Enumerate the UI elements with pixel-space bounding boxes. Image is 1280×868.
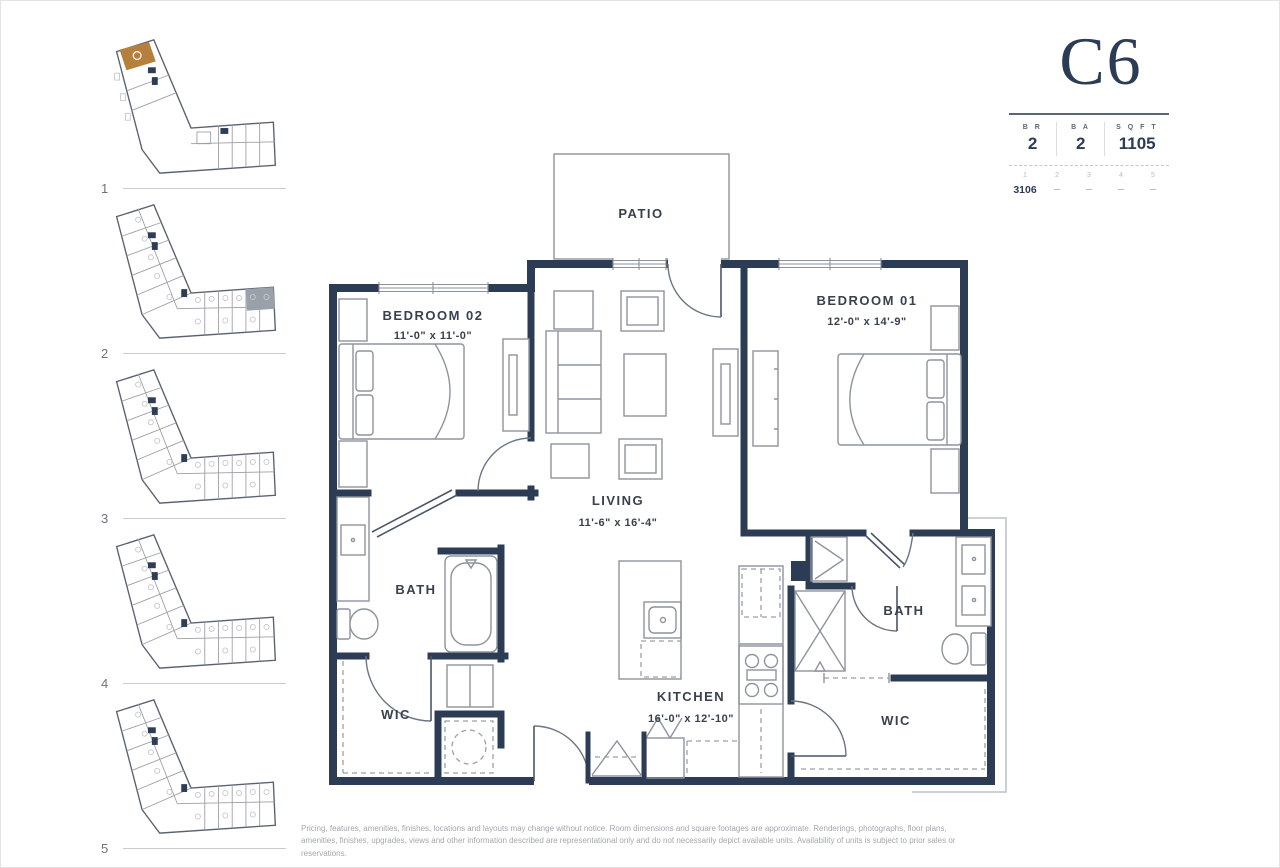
- availability-floor-4: –: [1105, 184, 1137, 196]
- floor-number-2: 2: [1041, 172, 1073, 179]
- level-label-2: 2: [101, 346, 286, 361]
- bedroom01-dims: 12'-0" x 14'-9": [827, 316, 906, 328]
- windows: [379, 257, 881, 295]
- bath-left-label: BATH: [395, 582, 436, 597]
- availability-floor-5: –: [1137, 184, 1169, 196]
- bath-right-fixtures: [942, 537, 991, 665]
- building-plate-level-1-icon: [101, 34, 286, 179]
- level-thumbnail-5[interactable]: 5: [101, 694, 286, 856]
- stat-br-label: B R: [1009, 124, 1056, 131]
- floor-number-5: 5: [1137, 172, 1169, 179]
- level-divider-line: [123, 518, 286, 519]
- level-divider-line: [123, 848, 286, 849]
- floor-number-1: 1: [1009, 172, 1041, 179]
- hall-closet-and-shower: [795, 537, 847, 671]
- level-label-1: 1: [101, 181, 286, 196]
- level-divider-line: [123, 353, 286, 354]
- living-furniture: [546, 291, 738, 479]
- availability-floor-3: –: [1073, 184, 1105, 196]
- kitchen-label: KITCHEN: [657, 689, 725, 704]
- wic-left-label: WIC: [381, 707, 411, 722]
- stats-dashed-rule: [1009, 165, 1169, 166]
- bath-right-label: BATH: [883, 603, 924, 618]
- floor-availability-row: 3106 – – – –: [1009, 179, 1169, 196]
- floorplan-drawing: PATIO BEDROOM 02 11'-0" x 11'-0" BEDROOM…: [319, 141, 1039, 801]
- patio-door: [668, 257, 721, 317]
- wic-right-label: WIC: [881, 713, 911, 728]
- entry-door: [534, 726, 589, 788]
- stats-top-rule: [1009, 113, 1169, 115]
- building-plate-level-4-icon: [101, 529, 286, 674]
- kitchen-fixtures: [588, 561, 783, 781]
- stat-ba-label: B A: [1057, 124, 1104, 131]
- availability-floor-1: 3106: [1009, 184, 1041, 196]
- bedroom02-furniture: [339, 299, 529, 487]
- level-divider-line: [123, 188, 286, 189]
- level-number: 4: [101, 676, 117, 691]
- building-plate-level-2-icon: [101, 199, 286, 344]
- level-label-5: 5: [101, 841, 286, 856]
- level-thumbnail-1[interactable]: 1: [101, 34, 286, 196]
- stat-sqft: S Q F T 1105: [1104, 122, 1169, 156]
- bath-left-fixtures: [337, 497, 497, 652]
- level-thumbnail-2[interactable]: 2: [101, 199, 286, 361]
- stat-ba: B A 2: [1056, 122, 1104, 156]
- level-label-3: 3: [101, 511, 286, 526]
- stats-columns: B R 2 B A 2 S Q F T 1105: [1009, 122, 1169, 156]
- kitchen-dims: 16'-0" x 12'-10": [648, 713, 734, 725]
- availability-floor-2: –: [1041, 184, 1073, 196]
- unit-stats-panel: B R 2 B A 2 S Q F T 1105 1 2 3 4 5 3106 …: [1009, 113, 1169, 196]
- floor-number-3: 3: [1073, 172, 1105, 179]
- living-label: LIVING: [592, 493, 644, 508]
- stat-br: B R 2: [1009, 122, 1056, 156]
- building-plate-level-3-icon: [101, 364, 286, 509]
- patio-label: PATIO: [618, 206, 663, 221]
- level-number: 5: [101, 841, 117, 856]
- level-thumbnail-3[interactable]: 3: [101, 364, 286, 526]
- bedroom01-furniture: [753, 306, 961, 493]
- stat-sqft-label: S Q F T: [1105, 124, 1169, 131]
- level-number: 2: [101, 346, 117, 361]
- stat-sqft-value: 1105: [1105, 134, 1169, 154]
- legal-disclaimer: Pricing, features, amenities, finishes, …: [301, 823, 959, 860]
- unit-name-heading: C6: [1021, 27, 1181, 95]
- bedroom02-label: BEDROOM 02: [383, 308, 484, 323]
- unit-floorplan: PATIO BEDROOM 02 11'-0" x 11'-0" BEDROOM…: [319, 141, 1039, 801]
- bedroom01-label: BEDROOM 01: [817, 293, 918, 308]
- level-number: 3: [101, 511, 117, 526]
- floor-number-4: 4: [1105, 172, 1137, 179]
- stat-br-value: 2: [1009, 134, 1056, 154]
- level-thumbnail-4[interactable]: 4: [101, 529, 286, 691]
- stat-ba-value: 2: [1057, 134, 1104, 154]
- level-divider-line: [123, 683, 286, 684]
- building-plate-level-5-icon: [101, 694, 286, 839]
- level-label-4: 4: [101, 676, 286, 691]
- floor-numbers-row: 1 2 3 4 5: [1009, 172, 1169, 179]
- floorplan-page: 1 2 3 4: [0, 0, 1280, 868]
- living-dims: 11'-6" x 16'-4": [579, 517, 658, 529]
- bedroom02-dims: 11'-0" x 11'-0": [394, 330, 472, 342]
- level-number: 1: [101, 181, 117, 196]
